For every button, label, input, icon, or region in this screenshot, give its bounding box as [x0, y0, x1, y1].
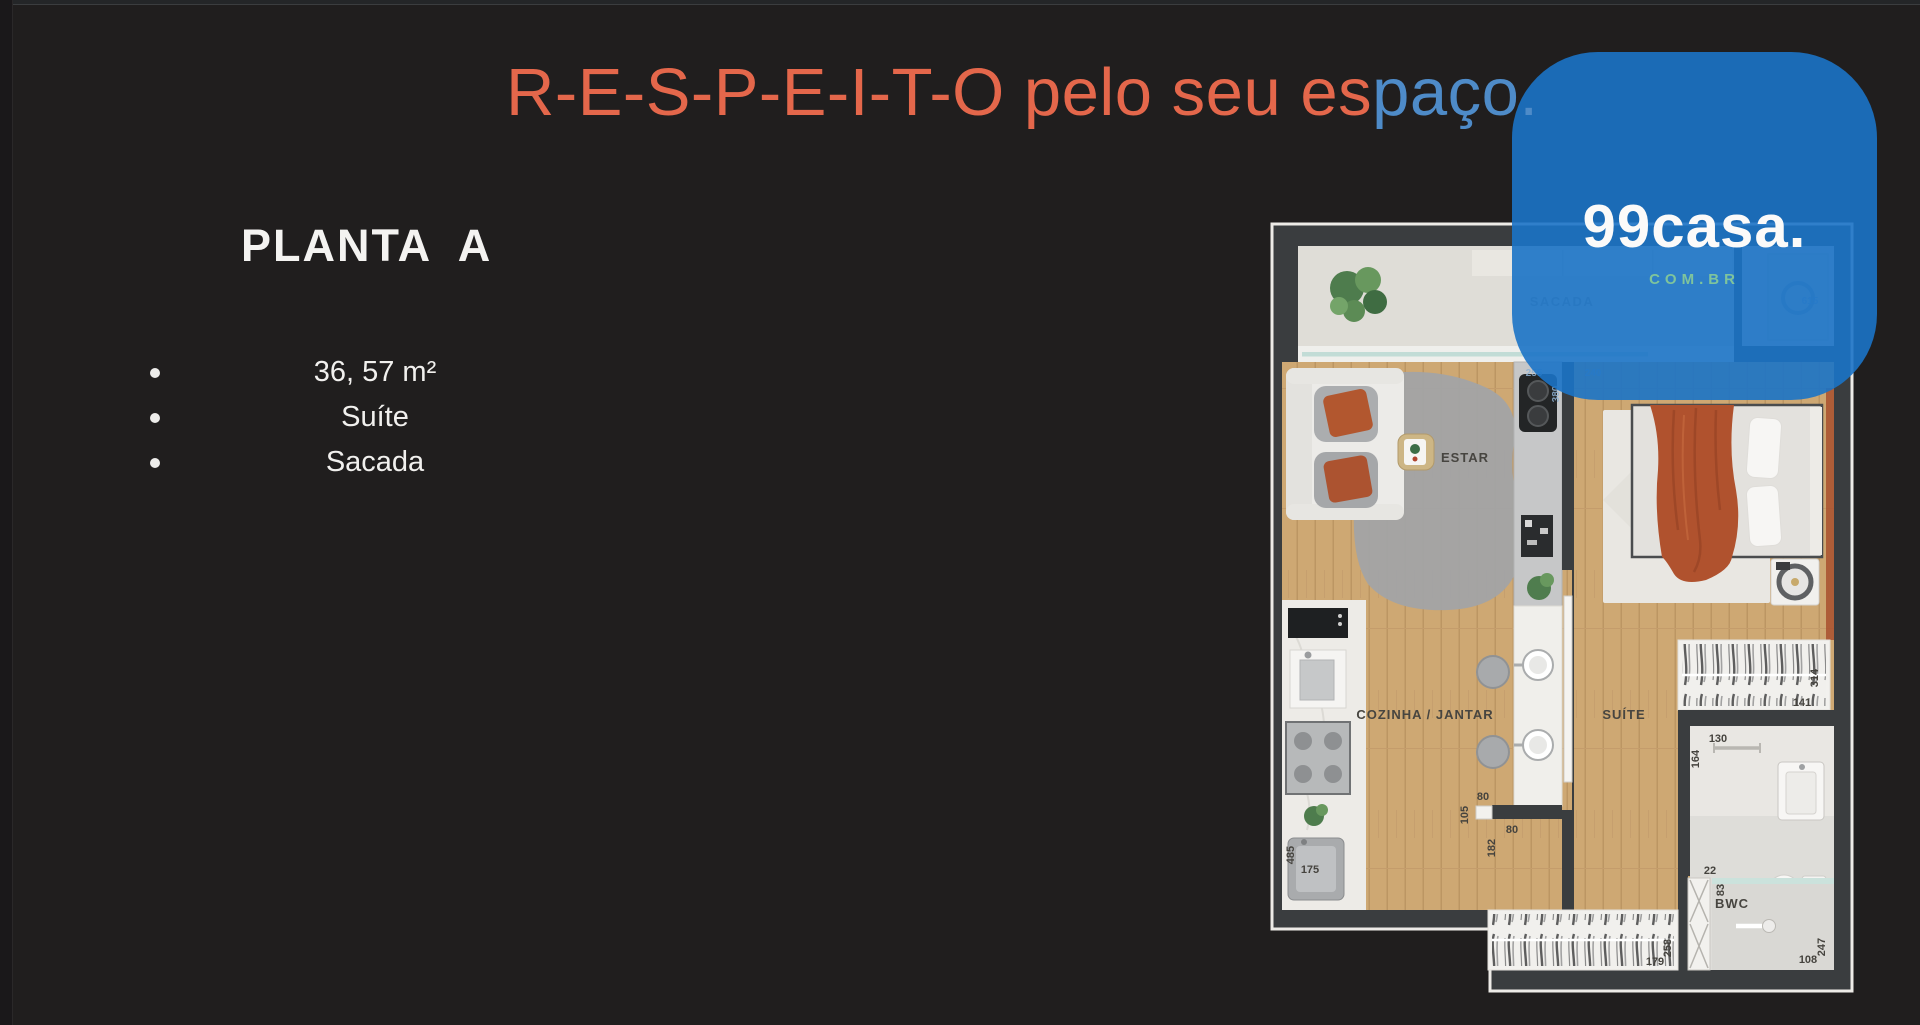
room-label-bwc: BWC [1715, 896, 1749, 911]
room-label-cozinha: COZINHA / JANTAR [1356, 707, 1493, 722]
vacuum-icon [1771, 559, 1819, 605]
glass-partition [1564, 596, 1572, 782]
slide-title-highlight: R-E-S-P-E-I-T-O pelo seu es [506, 55, 1372, 130]
dim-pass: 105 [1459, 806, 1471, 824]
pillow-icon [1322, 388, 1374, 438]
kitchen-counter [1514, 362, 1562, 806]
99casa-logo: 99casa. COM.BR [1512, 52, 1877, 400]
list-item: Sacada [150, 440, 600, 485]
dim-pass: 182 [1486, 839, 1498, 857]
bullet-icon [150, 458, 160, 468]
dim-closet: 314 [1809, 668, 1821, 687]
dim-pass: 80 [1506, 824, 1518, 836]
bathroom-sink [1778, 762, 1824, 820]
pillow-icon [1746, 485, 1782, 547]
stool-icon [1477, 736, 1509, 768]
dim-pass: 80 [1477, 791, 1489, 803]
cooktop-icon [1286, 722, 1350, 794]
logo-brand-text: 99casa. [1583, 192, 1807, 261]
dim-bath: 164 [1690, 749, 1702, 768]
plan-heading: PLANTA A [241, 220, 492, 272]
dim-tub: 175 [1301, 864, 1319, 876]
dim-closet: 141 [1793, 697, 1811, 709]
stool-icon [1477, 656, 1509, 688]
sofa [1286, 368, 1404, 520]
curtain [1826, 388, 1834, 640]
pillow-icon [1746, 417, 1782, 479]
list-item-label: 36, 57 m² [314, 356, 437, 388]
room-label-estar: ESTAR [1441, 450, 1489, 465]
slide-title-overlap: paço. [1372, 55, 1538, 130]
slide-title: R-E-S-P-E-I-T-O pelo seu espaço. [506, 54, 1539, 131]
dim-bath-door: 83 [1715, 884, 1727, 896]
door-leaf [1476, 806, 1492, 819]
dim-wardrobe: 258 [1662, 939, 1674, 957]
list-item: Suíte [150, 395, 600, 440]
list-item: 36, 57 m² [150, 350, 600, 395]
dim-shower: 108 [1799, 954, 1817, 966]
bed [1632, 405, 1822, 582]
left-edge-strip [0, 0, 13, 1025]
dim-shower: 247 [1816, 938, 1828, 956]
room-label-suite: SUÍTE [1602, 707, 1645, 722]
list-item-label: Sacada [326, 446, 424, 478]
folding-door [1688, 878, 1710, 970]
dim-bath: 130 [1709, 733, 1727, 745]
coffee-table [1398, 434, 1434, 470]
bullet-icon [150, 413, 160, 423]
list-item-label: Suíte [341, 401, 409, 433]
dim-bath-door: 22 [1704, 865, 1716, 877]
logo-domain-text: COM.BR [1649, 271, 1740, 288]
bullet-icon [150, 368, 160, 378]
dim-tub: 485 [1285, 846, 1297, 864]
top-bar [0, 0, 1920, 5]
feature-list: 36, 57 m² Suíte Sacada [150, 350, 600, 485]
pillow-icon [1323, 454, 1374, 503]
shower-glass [1712, 878, 1834, 884]
